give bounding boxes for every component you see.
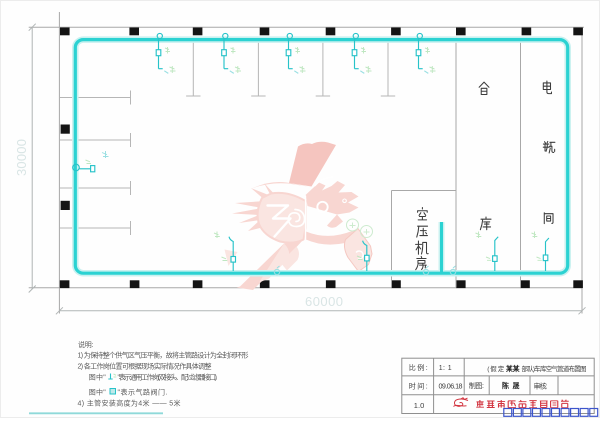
svg-text:制图:: 制图: xyxy=(469,381,484,390)
svg-text:部队)车库空气管道布置图: 部队)车库空气管道布置图 xyxy=(522,364,587,373)
svg-text:陈 晟: 陈 晟 xyxy=(502,381,520,390)
svg-text:1) 为保持整个供气区气压平衡，故将主管路设计为全封闭环形: 1) 为保持整个供气区气压平衡，故将主管路设计为全封闭环形 xyxy=(78,351,249,360)
svg-text:30000: 30000 xyxy=(14,139,29,176)
svg-text:(假定: (假定 xyxy=(487,364,505,373)
svg-text:图中": 图中" xyxy=(89,373,107,382)
svg-text:4) 主管安装高度为4米 —— 5米: 4) 主管安装高度为4米 —— 5米 xyxy=(78,399,181,408)
svg-text:比例:: 比例: xyxy=(409,363,428,372)
svg-text:"表示气路阀门.: "表示气路阀门. xyxy=(118,388,168,397)
svg-text:2) 各工作岗位置可根据现场实际情况作具体调整: 2) 各工作岗位置可根据现场实际情况作具体调整 xyxy=(78,362,212,371)
svg-text:图中": 图中" xyxy=(89,388,107,397)
svg-text:1: 1: 1: 1 xyxy=(439,365,452,372)
svg-text:时间:: 时间: xyxy=(409,382,428,391)
svg-text:审核:: 审核: xyxy=(534,382,548,391)
svg-text:1.0: 1.0 xyxy=(414,401,425,410)
svg-text:说明:: 说明: xyxy=(78,340,94,349)
svg-text:09.06.18: 09.06.18 xyxy=(439,382,463,391)
svg-text:某某: 某某 xyxy=(506,364,520,373)
svg-text:60000: 60000 xyxy=(305,294,343,309)
svg-text:"表示通用工作岗(双接头、配过滤器接口).: "表示通用工作岗(双接头、配过滤器接口). xyxy=(118,373,218,382)
